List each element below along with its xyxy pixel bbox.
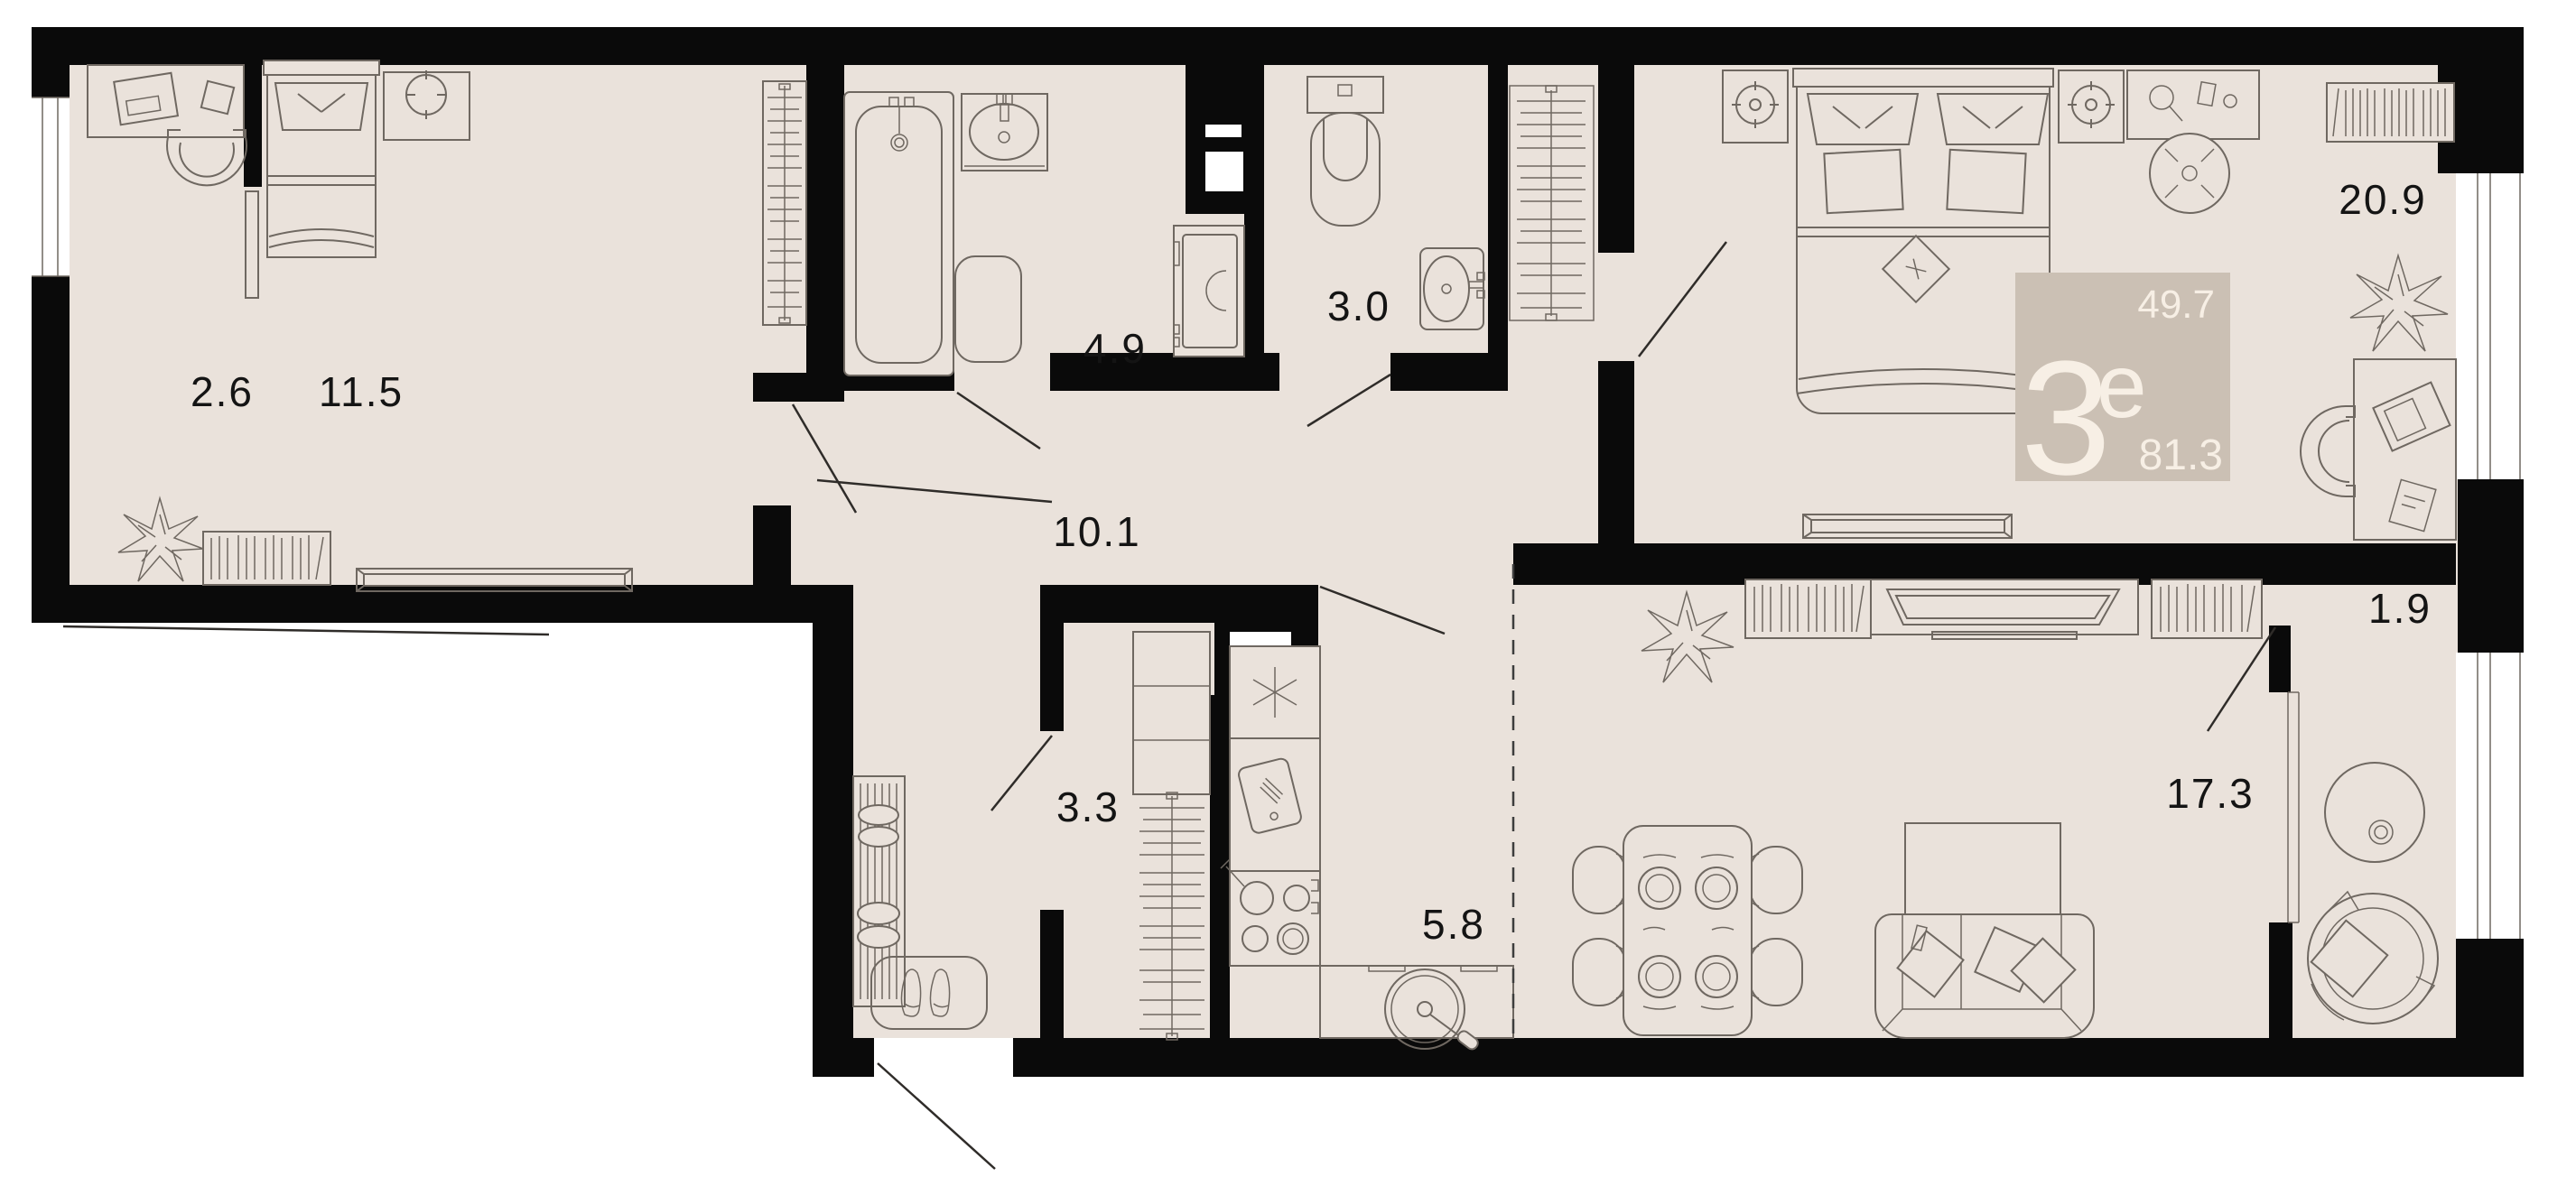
desk-small [88,65,244,137]
dresser [2127,70,2259,139]
floorplan-page: 49.7 3 е 81.3 2.6 11.5 4.9 3.0 10.1 3.3 … [0,0,2576,1177]
wall-room-bath [806,65,844,373]
label-bedroom-small: 11.5 [319,368,404,415]
wall-wc-right [1488,27,1508,391]
chair [1573,847,1625,913]
balcony-armchair [2308,892,2438,1024]
chair [1750,847,1802,913]
wardrobe-shelves [1133,632,1210,794]
tv-bookshelf-right [2152,579,2262,638]
wall-bottom-pier-left [813,1038,874,1077]
toilet [1307,77,1383,226]
label-wc: 3.0 [1327,283,1390,329]
desk-master [2354,359,2456,540]
wall-vestibule-right-lower [1040,910,1064,1038]
label-kitchen: 5.8 [1422,901,1485,948]
wall-right-bottom-block [2456,939,2524,1077]
bookshelf-small-bedroom [203,532,330,585]
shoe-rack [853,776,905,1006]
unit-badge: 49.7 3 е 81.3 [2015,273,2230,509]
wardrobe-master [2327,83,2454,142]
pocket-door-leaf[interactable] [246,191,258,298]
vent-hole-1 [1205,125,1242,137]
wall-top [32,27,2524,65]
wall-wc-bottom [1390,353,1508,391]
badge-rooms-suffix: е [2097,336,2147,437]
wall-right-mid-block [2458,479,2524,653]
wall-vestibule-left [813,623,853,1077]
window-left-opening [32,97,70,276]
label-wardrobe-room: 3.3 [1056,783,1120,830]
bed-double-headboard [1793,69,2053,87]
vent-hole-2 [1205,152,1243,191]
wall-balcony-pier-top [2269,626,2291,692]
wall-under-shaft [1244,214,1264,391]
wall-room-lower [753,505,791,585]
wc-sink [1420,248,1484,329]
wall-balcony-pier-bottom [2269,922,2292,1077]
entrance-door-leaf[interactable] [878,1063,995,1169]
badge-area-total: 81.3 [2139,431,2223,479]
bathtub [844,92,953,375]
nightstand-small [384,72,470,140]
stove [1221,859,1320,966]
badge-area-upper: 49.7 [2137,283,2215,327]
chair [1573,939,1625,1006]
exterior-guide-line [63,626,549,635]
wall-bedroom-left-upper [1598,27,1634,253]
tv-bookshelf-left [1745,579,1871,638]
sofa [1875,914,2094,1038]
wall-room-jog [753,373,844,402]
label-balcony: 1.9 [2368,585,2432,632]
wall-vestibule-right-upper [1040,623,1064,731]
entrance-opening [874,1038,1013,1077]
balcony-table [2325,763,2424,862]
bathroom-sink [962,94,1047,171]
kitchen-sink-counter [1320,966,1513,1052]
label-bedroom-master: 20.9 [2339,176,2427,223]
floorplan-drawing: 49.7 3 е 81.3 2.6 11.5 4.9 3.0 10.1 3.3 … [0,0,2576,1177]
washing-machine [1174,226,1244,357]
label-hall-nook: 2.6 [191,368,254,415]
chair [1750,939,1802,1006]
label-bathroom: 4.9 [1083,325,1147,372]
label-hallway: 10.1 [1053,508,1141,555]
bed-single-headboard [264,60,379,75]
vanity-stool [2150,134,2229,213]
label-living-room: 17.3 [2166,770,2255,817]
fridge [1230,646,1320,738]
wall-corridor-bottom [1040,585,1214,623]
wall-partition-26-115 [244,27,262,187]
wall-bottom [1013,1038,2524,1077]
kitchen-counter [1230,738,1320,871]
tv-console [1871,579,2138,639]
